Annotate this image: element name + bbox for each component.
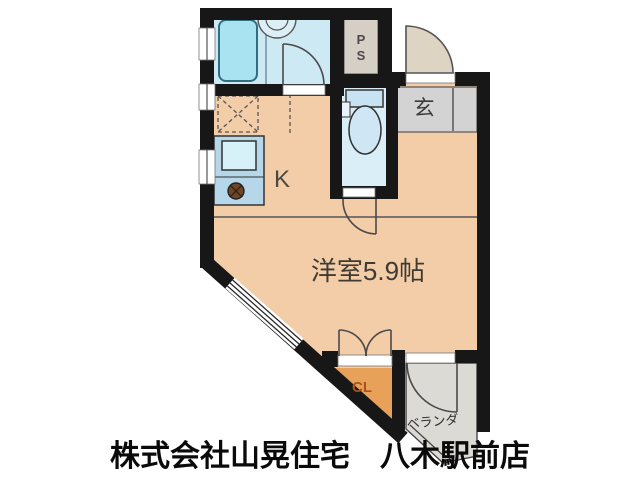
- floor-plan-svg: K 洋室5.9帖 玄 P S CL ベランダ 株式会社山晃住宅 八木駅前店: [0, 0, 640, 480]
- window-kitchen: [199, 150, 215, 184]
- bathtub: [219, 20, 257, 81]
- window-bathroom: [199, 28, 215, 60]
- entrance-threshold: [406, 73, 455, 83]
- main-room-label: 洋室5.9帖: [311, 256, 425, 286]
- kitchen-sink: [222, 141, 256, 170]
- floor-plan-image: K 洋室5.9帖 玄 P S CL ベランダ 株式会社山晃住宅 八木駅前店: [0, 0, 640, 480]
- bathroom-door-gap: [283, 85, 325, 95]
- entrance-floor: [392, 87, 477, 132]
- pipe-space-label-s: S: [357, 48, 366, 63]
- window-washer-area: [199, 84, 215, 110]
- entrance-door-arc: [406, 26, 453, 73]
- entrance-label: 玄: [414, 97, 435, 120]
- toilet-door-gap: [343, 188, 375, 197]
- kitchen-label: K: [274, 166, 290, 193]
- balcony-threshold: [406, 353, 455, 363]
- closet-threshold: [338, 355, 392, 366]
- closet-label: CL: [352, 379, 372, 396]
- stove-burner-icon: [228, 183, 244, 199]
- footer-company-text: 株式会社山晃住宅 八木駅前店: [110, 439, 530, 473]
- pipe-space-label-p: P: [357, 32, 366, 47]
